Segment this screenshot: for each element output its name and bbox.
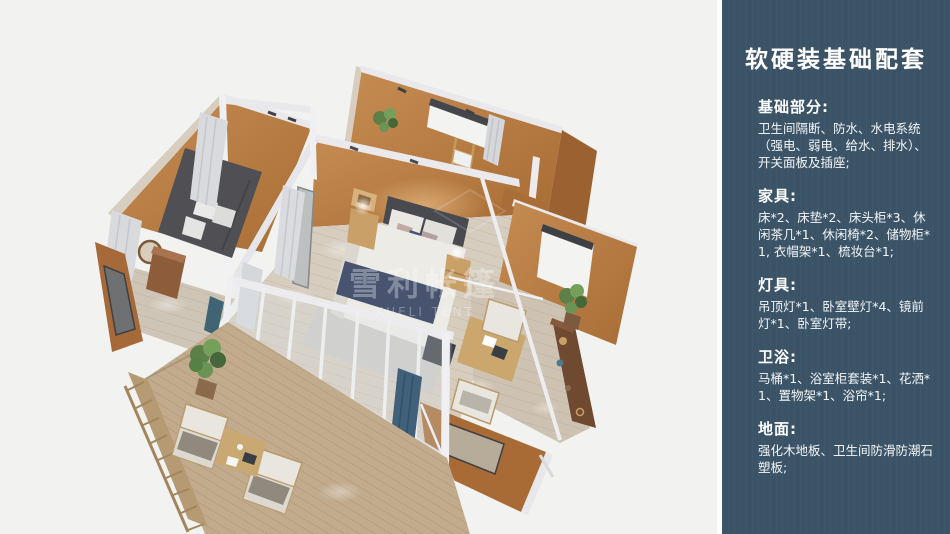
section-body: 吊顶灯*1、卧室壁灯*4、镜前灯*1、卧室灯带; [758, 298, 934, 332]
section-heading: 卫浴: [758, 346, 934, 367]
slide: 雪利帐篷 XUELI TENT 软硬装基础配套 基础部分: 卫生间隔断、防水、水… [0, 0, 950, 534]
tent-3d-render: 雪利帐篷 XUELI TENT [0, 0, 717, 534]
watermark-subtext: XUELI TENT [375, 305, 475, 319]
panel-title: 软硬装基础配套 [728, 40, 944, 74]
section-heading: 家具: [758, 185, 934, 206]
section-body: 马桶*1、浴室柜套装*1、花洒*1、置物架*1、浴帘*1; [758, 370, 934, 404]
spec-section-bathroom: 卫浴: 马桶*1、浴室柜套装*1、花洒*1、置物架*1、浴帘*1; [758, 346, 934, 404]
spec-section-basics: 基础部分: 卫生间隔断、防水、水电系统（强电、弱电、给水、排水）、开关面板及插座… [758, 96, 934, 171]
spec-section-flooring: 地面: 强化木地板、卫生间防滑防潮石塑板; [758, 418, 934, 476]
spec-section-furniture: 家具: 床*2、床垫*2、床头柜*3、休闲茶几*1、休闲椅*2、储物柜*1, 衣… [758, 185, 934, 260]
floorplan-render: 雪利帐篷 XUELI TENT [0, 0, 717, 534]
section-body: 床*2、床垫*2、床头柜*3、休闲茶几*1、休闲椅*2、储物柜*1, 衣帽架*1… [758, 209, 934, 260]
section-heading: 地面: [758, 418, 934, 439]
spec-panel: 软硬装基础配套 基础部分: 卫生间隔断、防水、水电系统（强电、弱电、给水、排水）… [722, 0, 950, 534]
spec-section-lighting: 灯具: 吊顶灯*1、卧室壁灯*4、镜前灯*1、卧室灯带; [758, 274, 934, 332]
section-heading: 灯具: [758, 274, 934, 295]
spec-sections: 基础部分: 卫生间隔断、防水、水电系统（强电、弱电、给水、排水）、开关面板及插座… [722, 96, 950, 476]
section-heading: 基础部分: [758, 96, 934, 117]
section-body: 卫生间隔断、防水、水电系统（强电、弱电、给水、排水）、开关面板及插座; [758, 120, 934, 171]
watermark-text: 雪利帐篷 [349, 265, 501, 303]
frame-post [441, 332, 450, 465]
section-body: 强化木地板、卫生间防滑防潮石塑板; [758, 442, 934, 476]
